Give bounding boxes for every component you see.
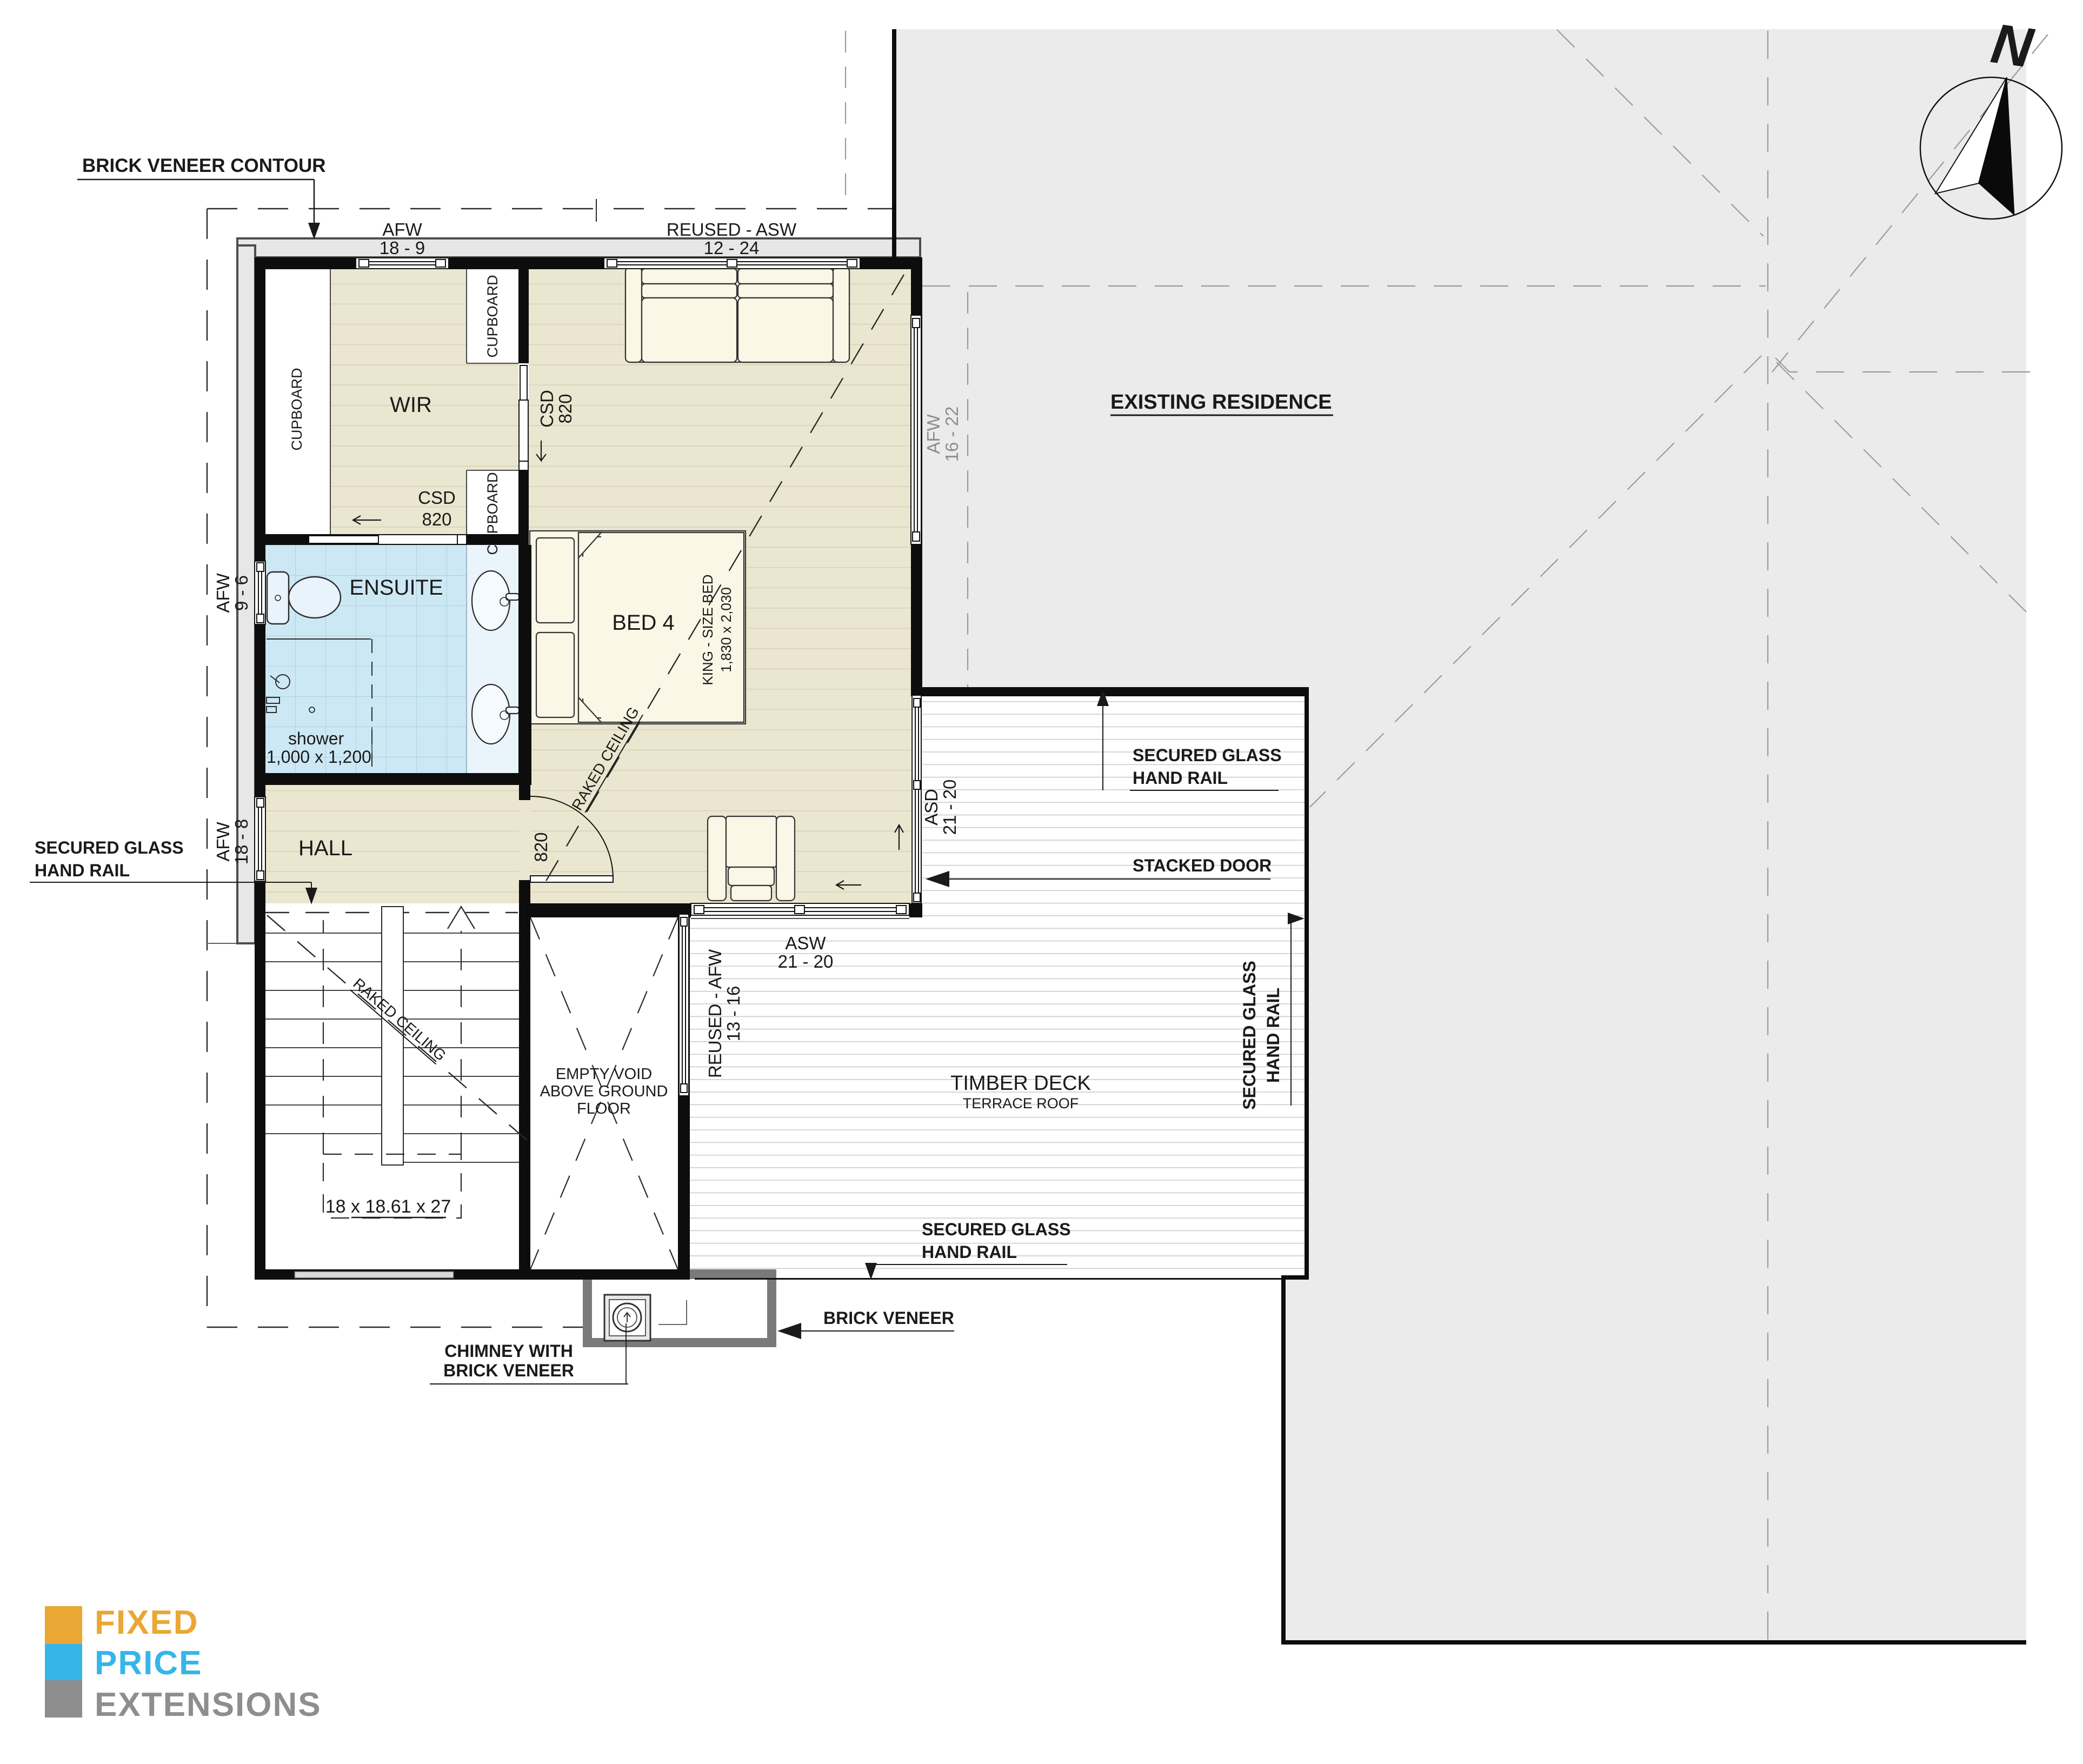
svg-text:AFW: AFW	[213, 821, 233, 861]
svg-text:FIXED: FIXED	[95, 1604, 199, 1641]
svg-text:SECURED GLASS: SECURED GLASS	[922, 1220, 1071, 1239]
svg-text:ABOVE GROUND: ABOVE GROUND	[540, 1083, 668, 1100]
svg-text:21 - 20: 21 - 20	[940, 780, 960, 835]
svg-text:TERRACE ROOF: TERRACE ROOF	[963, 1095, 1079, 1111]
svg-text:SECURED GLASS: SECURED GLASS	[1133, 745, 1282, 765]
svg-text:HAND RAIL: HAND RAIL	[35, 861, 130, 880]
svg-text:1,000 x 1,200: 1,000 x 1,200	[267, 747, 371, 767]
svg-text:AFW: AFW	[382, 219, 422, 239]
svg-text:BRICK VENEER: BRICK VENEER	[823, 1308, 954, 1328]
svg-text:BED 4: BED 4	[612, 611, 675, 635]
svg-text:SECURED GLASS: SECURED GLASS	[35, 838, 184, 857]
svg-text:ENSUITE: ENSUITE	[349, 576, 443, 600]
svg-text:AFW: AFW	[923, 414, 943, 454]
svg-text:HALL: HALL	[298, 836, 352, 860]
svg-text:HAND RAIL: HAND RAIL	[1263, 988, 1283, 1083]
svg-text:CSD: CSD	[537, 390, 557, 428]
svg-text:EXISTING RESIDENCE: EXISTING RESIDENCE	[1110, 391, 1332, 414]
svg-text:AFW: AFW	[213, 573, 233, 613]
svg-text:HAND RAIL: HAND RAIL	[1133, 768, 1228, 788]
svg-text:REUSED - ASW: REUSED - ASW	[667, 219, 797, 239]
svg-text:9 - 6: 9 - 6	[231, 575, 251, 611]
svg-text:TIMBER DECK: TIMBER DECK	[950, 1072, 1091, 1095]
svg-text:shower: shower	[288, 729, 344, 748]
svg-text:ASW: ASW	[785, 933, 826, 953]
svg-text:820: 820	[531, 832, 551, 862]
svg-text:1,830 x 2,030: 1,830 x 2,030	[718, 587, 734, 673]
svg-text:CUPBOARD: CUPBOARD	[289, 368, 305, 450]
svg-text:820: 820	[555, 394, 575, 423]
svg-text:HAND RAIL: HAND RAIL	[922, 1242, 1017, 1262]
svg-text:CUPBOARD: CUPBOARD	[484, 275, 501, 357]
svg-text:21 - 20: 21 - 20	[778, 951, 834, 971]
svg-text:WIR: WIR	[390, 393, 432, 417]
svg-text:13 - 16: 13 - 16	[723, 986, 743, 1042]
svg-text:18 - 9: 18 - 9	[380, 238, 425, 258]
svg-text:KING - SIZE BED: KING - SIZE BED	[700, 574, 716, 685]
svg-text:SECURED GLASS: SECURED GLASS	[1240, 961, 1259, 1110]
svg-text:CHIMNEY WITH: CHIMNEY WITH	[444, 1341, 573, 1361]
svg-text:16 - 22: 16 - 22	[942, 407, 962, 462]
svg-text:12 - 24: 12 - 24	[704, 238, 760, 258]
svg-text:FLOOR: FLOOR	[577, 1100, 631, 1117]
svg-text:BRICK VENEER CONTOUR: BRICK VENEER CONTOUR	[82, 155, 326, 176]
svg-text:18 - 8: 18 - 8	[231, 819, 251, 864]
svg-text:STACKED DOOR: STACKED DOOR	[1133, 856, 1272, 875]
svg-text:EXTENSIONS: EXTENSIONS	[95, 1686, 322, 1723]
svg-text:ASD: ASD	[921, 789, 941, 826]
svg-text:CSD: CSD	[418, 488, 456, 508]
svg-text:EMPTY VOID: EMPTY VOID	[556, 1066, 652, 1083]
svg-text:PRICE: PRICE	[95, 1645, 202, 1682]
svg-text:REUSED - AFW: REUSED - AFW	[705, 949, 725, 1078]
svg-text:820: 820	[422, 509, 451, 529]
svg-text:BRICK VENEER: BRICK VENEER	[443, 1361, 574, 1380]
svg-text:18 x 18.61 x 27: 18 x 18.61 x 27	[325, 1196, 451, 1217]
